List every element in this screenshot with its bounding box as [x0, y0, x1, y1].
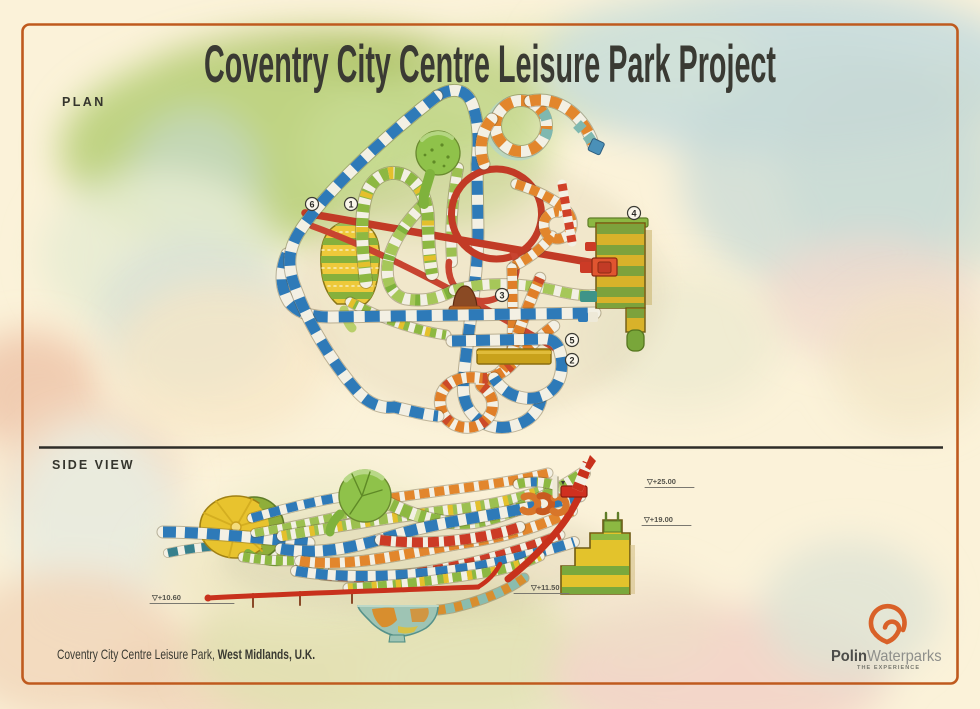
- svg-text:SIDE VIEW: SIDE VIEW: [52, 458, 135, 472]
- svg-text:2: 2: [569, 356, 574, 366]
- svg-text:4: 4: [631, 209, 636, 219]
- svg-text:▽+19.00: ▽+19.00: [643, 515, 673, 524]
- svg-text:Coventry City Centre Leisure P: Coventry City Centre Leisure Park, West …: [57, 646, 315, 662]
- svg-text:PolinWaterparks: PolinWaterparks: [831, 647, 942, 665]
- svg-text:6: 6: [309, 200, 314, 210]
- svg-text:PLAN: PLAN: [62, 95, 106, 109]
- svg-text:▽+11.50: ▽+11.50: [530, 583, 560, 592]
- svg-text:1: 1: [348, 200, 353, 210]
- svg-text:3: 3: [499, 291, 504, 301]
- svg-text:▽+10.60: ▽+10.60: [151, 593, 181, 602]
- svg-text:5: 5: [569, 336, 574, 346]
- svg-text:THE EXPERIENCE: THE EXPERIENCE: [857, 665, 921, 671]
- svg-text:▽+25.00: ▽+25.00: [646, 477, 676, 486]
- svg-text:Coventry City Centre Leisure P: Coventry City Centre Leisure Park Projec…: [204, 35, 776, 94]
